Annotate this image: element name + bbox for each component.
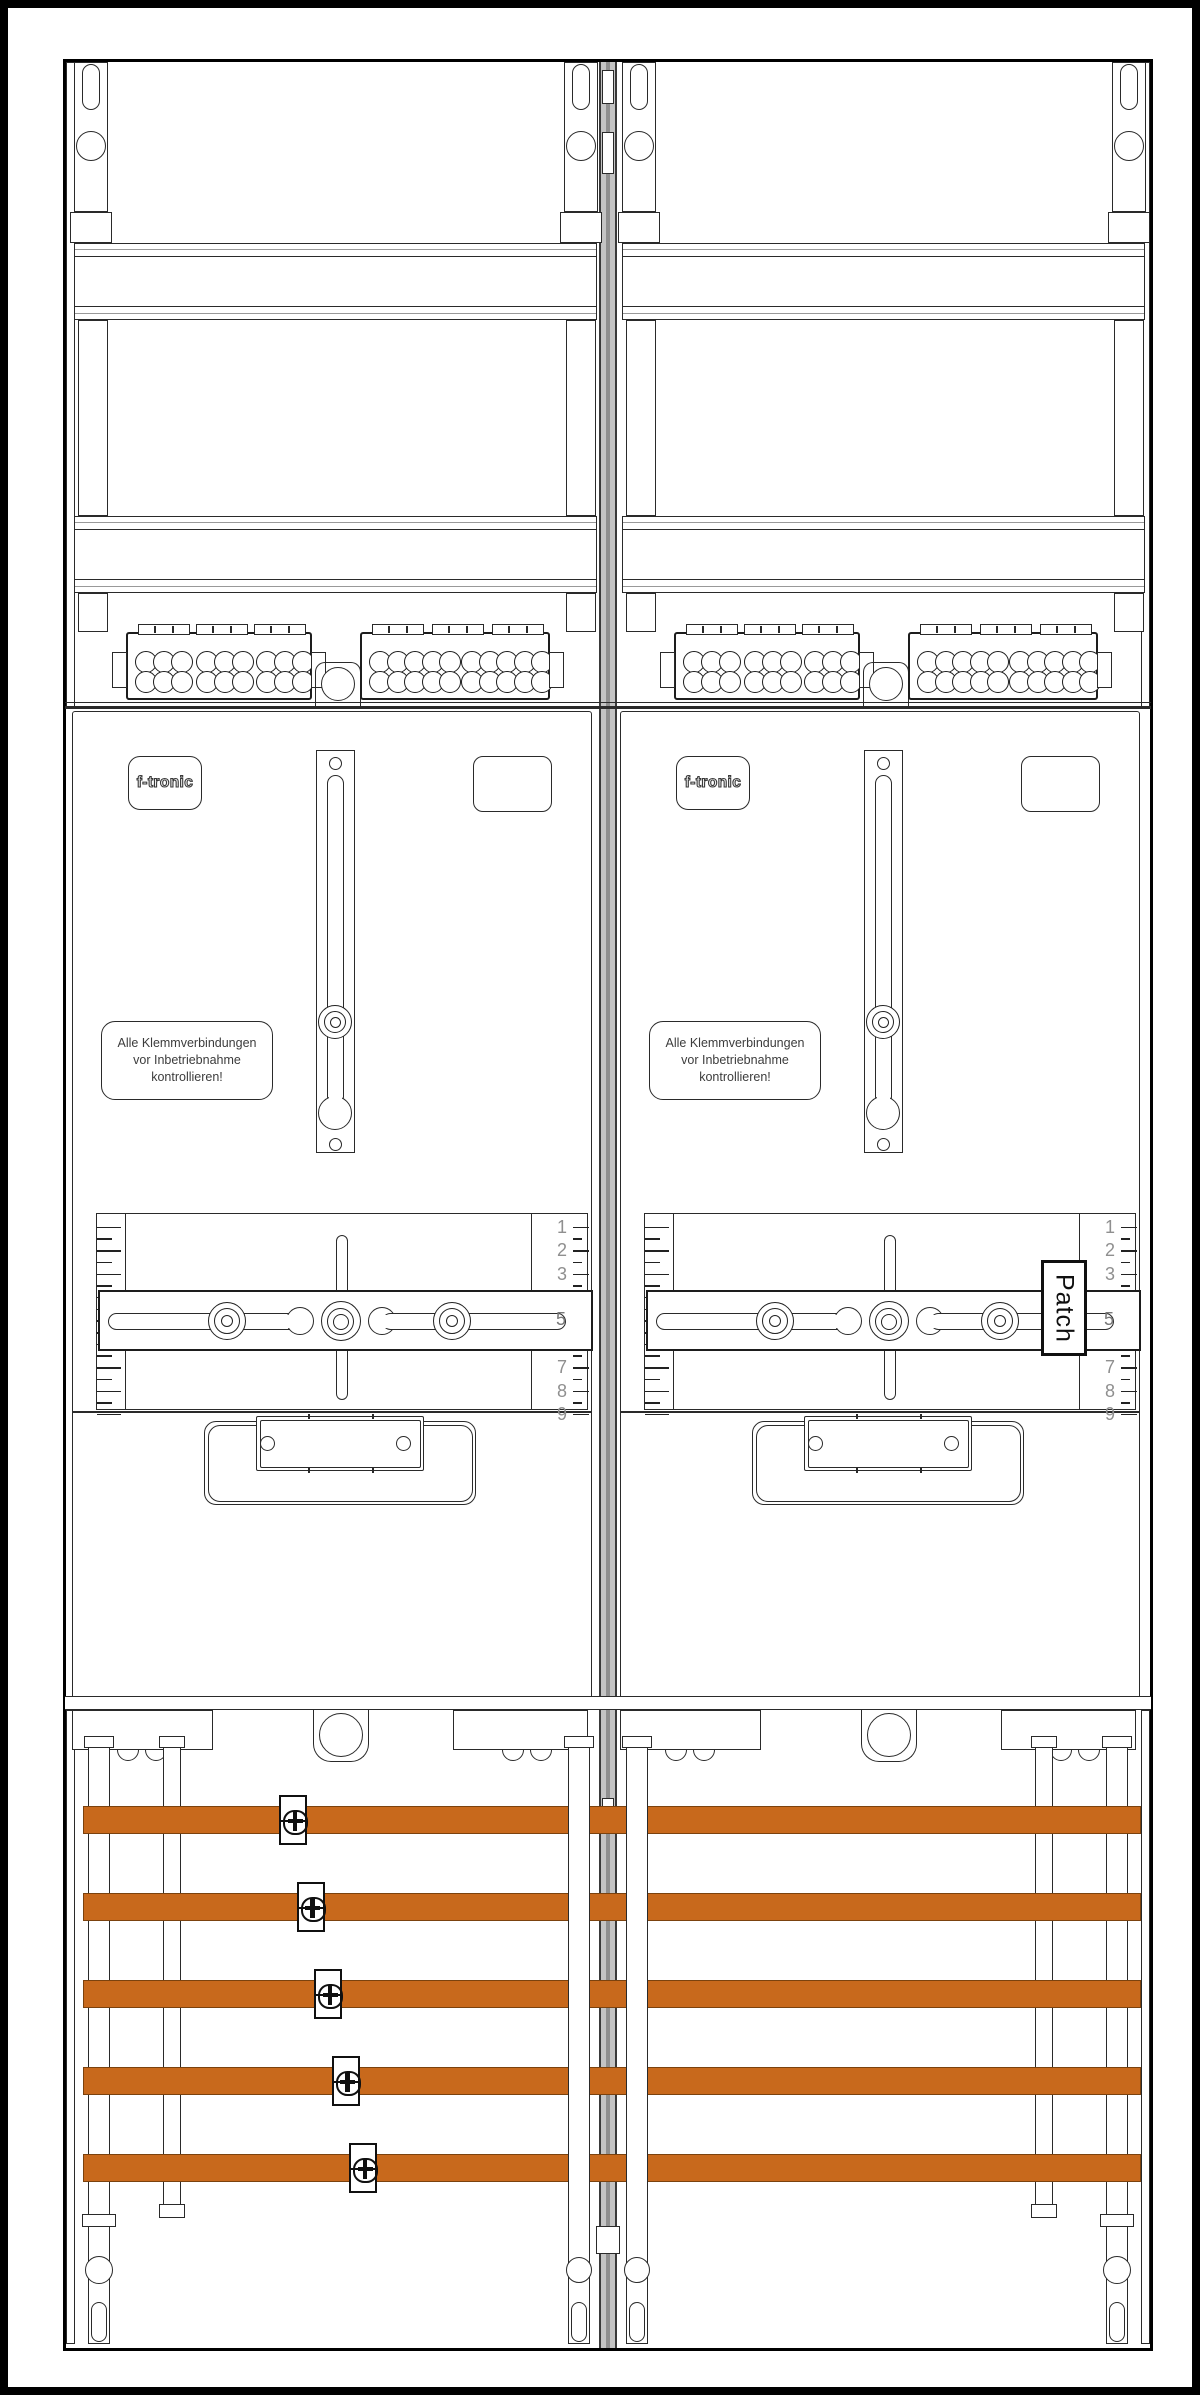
terminal-circle: [780, 671, 802, 693]
terminal-circle: [780, 651, 802, 673]
busbar-clamp: [332, 2056, 360, 2106]
cable-knockout: [319, 1713, 363, 1757]
ruler-tick-short: [645, 1262, 660, 1264]
terminal-tab-tick: [230, 626, 232, 633]
terminal-block: [126, 632, 312, 700]
busbar: [83, 1980, 1141, 2008]
ruler-tick-short: [97, 1262, 112, 1264]
terminal-tab-tick: [270, 626, 272, 633]
handle-hole: [944, 1436, 959, 1451]
cable-knockout: [867, 1713, 911, 1757]
handle-hole: [260, 1436, 275, 1451]
slide-slot: [382, 1313, 566, 1330]
warning-line: kontrollieren!: [102, 1069, 272, 1086]
ruler-tick-long: [1121, 1274, 1137, 1276]
clamp-screw-cross: [323, 1993, 338, 1998]
brand-label-text: f-tronic: [137, 774, 194, 792]
busbar-clamp: [279, 1795, 307, 1845]
warning-line: kontrollieren!: [650, 1069, 820, 1086]
ruler-tick-short: [97, 1379, 112, 1381]
rail-foot: [70, 212, 112, 243]
terminal-circle: [719, 671, 741, 693]
din-rail: [622, 243, 1145, 320]
adjuster-slot: [875, 775, 892, 1105]
center-bushing: [881, 1314, 897, 1330]
ruler-tick-short: [1121, 1285, 1130, 1287]
terminal-end-tab: [112, 652, 127, 688]
ruler-tick-long: [97, 1227, 121, 1229]
plate-tick: [856, 1468, 858, 1473]
ruler-number-on-bar: 5: [1099, 1308, 1119, 1330]
bar-screw: [994, 1315, 1006, 1327]
rail-slot: [571, 2302, 587, 2342]
terminal-tab-tick: [954, 626, 956, 633]
terminal-end-tab: [660, 652, 675, 688]
rail-foot: [159, 2204, 185, 2218]
busbar-clamp: [297, 1882, 325, 1932]
rail-hole: [85, 2256, 113, 2284]
warning-line: vor Inbetriebnahme: [650, 1052, 820, 1069]
ruler-tick-short: [645, 1238, 660, 1240]
rail-cap: [84, 1736, 114, 1748]
terminal-end-tab: [1097, 652, 1112, 688]
blank-nameplate: [473, 756, 552, 812]
terminal-tab: [744, 624, 796, 635]
adjuster-base-line: [620, 1411, 1140, 1413]
rail-hole: [1103, 2256, 1131, 2284]
divider-connector: [596, 2226, 620, 2254]
rail-stub: [626, 593, 656, 632]
busbar: [83, 1806, 1141, 1834]
terminal-tab: [686, 624, 738, 635]
rail-cap: [1031, 1736, 1057, 1748]
plate-tick: [308, 1414, 310, 1419]
terminal-tab-tick: [508, 626, 510, 633]
plate-tick: [920, 1468, 922, 1473]
plate-tick: [856, 1414, 858, 1419]
mounting-rail: [78, 320, 108, 516]
terminal-block: [360, 632, 550, 700]
center-bushing: [333, 1314, 349, 1330]
slider-screw: [878, 1017, 889, 1028]
rail-hole: [566, 2257, 592, 2283]
rail-stub: [78, 593, 108, 632]
rail-stub: [1114, 593, 1144, 632]
din-rail: [74, 243, 597, 320]
plate-tick: [372, 1468, 374, 1473]
rail-slot: [630, 64, 648, 110]
ruler-number: 3: [1100, 1263, 1120, 1285]
ruler-tick-long: [97, 1274, 121, 1276]
terminal-tab: [196, 624, 248, 635]
mounting-rail: [1114, 320, 1144, 516]
ruler-number: 2: [1100, 1239, 1120, 1261]
ruler-tick-short: [645, 1355, 660, 1357]
terminal-tab-tick: [406, 626, 408, 633]
slot-join: [877, 1094, 890, 1110]
ruler-tick-long: [645, 1414, 669, 1416]
ruler-tick-short: [1121, 1238, 1130, 1240]
rail-cap: [1102, 1736, 1132, 1748]
terminal-circle: [439, 651, 461, 673]
terminal-tab-tick: [1014, 626, 1016, 633]
ruler-tick-long: [1121, 1414, 1137, 1416]
slide-slot: [108, 1313, 300, 1330]
busbar: [83, 1893, 1141, 1921]
ruler-tick-short: [645, 1285, 660, 1287]
slot-join: [928, 1315, 942, 1328]
terminal-block: [908, 632, 1098, 700]
ruler-number: 9: [1100, 1403, 1120, 1425]
panel-right: f-tronic Alle Klemmverbindungen vor Inbe…: [556, 8, 1200, 2395]
busbar-clamp: [349, 2143, 377, 2193]
warning-line: Alle Klemmverbindungen: [650, 1035, 820, 1052]
slot-join: [284, 1315, 298, 1328]
terminal-tab-tick: [288, 626, 290, 633]
terminal-tab-tick: [466, 626, 468, 633]
ruler-tick-long: [1121, 1227, 1137, 1229]
terminal-tab-tick: [388, 626, 390, 633]
ruler-number: 8: [1100, 1380, 1120, 1402]
rail-cap: [622, 1736, 652, 1748]
rail-slot: [82, 64, 100, 110]
busbar: [83, 2067, 1141, 2095]
terminal-tab-tick: [526, 626, 528, 633]
ruler-tick-short: [97, 1285, 112, 1287]
terminal-tab: [802, 624, 854, 635]
ruler-tick-long: [97, 1414, 121, 1416]
ruler-tick-long: [645, 1274, 669, 1276]
terminal-tab: [1040, 624, 1092, 635]
ruler-tick-long: [97, 1367, 121, 1369]
rail-slot: [1120, 64, 1138, 110]
adjuster-hole: [329, 1138, 342, 1151]
rail-hole: [624, 131, 654, 161]
patch-label: Patch: [1041, 1260, 1087, 1356]
terminal-tab: [920, 624, 972, 635]
brand-label-text: f-tronic: [685, 774, 742, 792]
ruler-tick-long: [645, 1250, 669, 1252]
warning-line: vor Inbetriebnahme: [102, 1052, 272, 1069]
rail-hole: [1114, 131, 1144, 161]
terminal-circle: [439, 671, 461, 693]
meter-cabinet-drawing: f-tronic Alle Klemmverbindungen vor Inbe…: [0, 0, 1200, 2395]
terminal-circle: [232, 671, 254, 693]
ruler-tick-short: [1121, 1262, 1130, 1264]
din-rail: [622, 516, 1145, 593]
warning-label: Alle Klemmverbindungen vor Inbetriebnahm…: [649, 1021, 821, 1100]
busbar-rail-center: [568, 1736, 590, 2344]
adjuster-hole: [877, 757, 890, 770]
slot-join: [380, 1315, 394, 1328]
ruler-tick-long: [97, 1250, 121, 1252]
ruler-tick-short: [97, 1238, 112, 1240]
rail-cap: [564, 1736, 594, 1748]
terminal-circle: [171, 671, 193, 693]
ruler-tick-long: [645, 1391, 669, 1393]
terminal-tab-tick: [172, 626, 174, 633]
adjuster-base-line: [72, 1411, 592, 1413]
terminal-tab-tick: [720, 626, 722, 633]
mounting-rail: [626, 320, 656, 516]
terminal-tab: [372, 624, 424, 635]
clamp-screw-cross: [358, 2167, 373, 2172]
bar-screw: [221, 1315, 233, 1327]
blank-nameplate: [1021, 756, 1100, 812]
terminal-tab-tick: [702, 626, 704, 633]
rail-hole: [76, 131, 106, 161]
rail-foot: [618, 212, 660, 243]
warning-line: Alle Klemmverbindungen: [102, 1035, 272, 1052]
slot-join: [832, 1315, 846, 1328]
clamp-screw-cross: [340, 2080, 355, 2085]
patch-label-text: Patch: [1050, 1274, 1079, 1343]
terminal-block: [674, 632, 860, 700]
plate-tick: [920, 1414, 922, 1419]
ruler-tick-short: [97, 1355, 112, 1357]
terminal-tab-tick: [818, 626, 820, 633]
rail-slot: [91, 2302, 107, 2342]
ruler-tick-long: [1121, 1391, 1137, 1393]
clamp-screw-cross: [288, 1819, 303, 1824]
terminal-tab-tick: [836, 626, 838, 633]
section-divider-bar: [65, 1696, 1151, 1710]
terminal-tab-tick: [778, 626, 780, 633]
terminal-tab-tick: [154, 626, 156, 633]
terminal-tab: [492, 624, 544, 635]
busbar-clamp: [314, 1969, 342, 2019]
terminal-circle: [987, 671, 1009, 693]
cable-knockout: [869, 667, 903, 701]
ruler-tick-long: [645, 1227, 669, 1229]
plate-tick: [308, 1468, 310, 1473]
slide-slot: [656, 1313, 848, 1330]
rail-slot: [629, 2302, 645, 2342]
ruler-tick-short: [1121, 1355, 1130, 1357]
adjuster-slot: [327, 775, 344, 1105]
busbar-rail-center: [626, 1736, 648, 2344]
adjuster-hole: [877, 1138, 890, 1151]
handle-hole: [808, 1436, 823, 1451]
ruler-tick-short: [645, 1402, 660, 1404]
rail-slot: [1109, 2302, 1125, 2342]
ruler-tick-short: [1121, 1379, 1130, 1381]
rail-foot: [1100, 2214, 1134, 2227]
ruler-tick-short: [97, 1402, 112, 1404]
ruler-number: 7: [1100, 1356, 1120, 1378]
slot-join: [329, 1094, 342, 1110]
terminal-tab: [980, 624, 1032, 635]
terminal-circle: [232, 651, 254, 673]
terminal-circle: [171, 651, 193, 673]
ruler-tick-long: [97, 1391, 121, 1393]
clamp-screw-cross: [305, 1906, 320, 1911]
terminal-tab-tick: [1056, 626, 1058, 633]
slider-screw: [330, 1017, 341, 1028]
ruler-tick-short: [1121, 1402, 1130, 1404]
bar-screw: [769, 1315, 781, 1327]
terminal-tab: [138, 624, 190, 635]
terminal-tab: [254, 624, 306, 635]
terminal-tab-tick: [996, 626, 998, 633]
brand-label: f-tronic: [128, 756, 202, 810]
bar-screw: [446, 1315, 458, 1327]
terminal-tab-tick: [212, 626, 214, 633]
rail-foot: [1031, 2204, 1057, 2218]
busbar: [83, 2154, 1141, 2182]
terminal-tab-tick: [448, 626, 450, 633]
rail-foot: [82, 2214, 116, 2227]
handle-hole: [396, 1436, 411, 1451]
warning-label: Alle Klemmverbindungen vor Inbetriebnahm…: [101, 1021, 273, 1100]
rail-hole: [624, 2257, 650, 2283]
terminal-tab-tick: [1074, 626, 1076, 633]
rail-cap: [159, 1736, 185, 1748]
terminal-tab: [432, 624, 484, 635]
rail-foot: [1108, 212, 1150, 243]
plate-tick: [372, 1414, 374, 1419]
ruler-tick-short: [645, 1379, 660, 1381]
terminal-circle: [719, 651, 741, 673]
din-rail: [74, 516, 597, 593]
cable-knockout: [321, 667, 355, 701]
ruler-tick-long: [1121, 1250, 1137, 1252]
ruler-number: 1: [1100, 1216, 1120, 1238]
terminal-tab-tick: [936, 626, 938, 633]
ruler-tick-long: [1121, 1367, 1137, 1369]
terminal-circle: [987, 651, 1009, 673]
brand-label: f-tronic: [676, 756, 750, 810]
adjuster-hole: [329, 757, 342, 770]
ruler-tick-long: [645, 1367, 669, 1369]
terminal-tab-tick: [760, 626, 762, 633]
